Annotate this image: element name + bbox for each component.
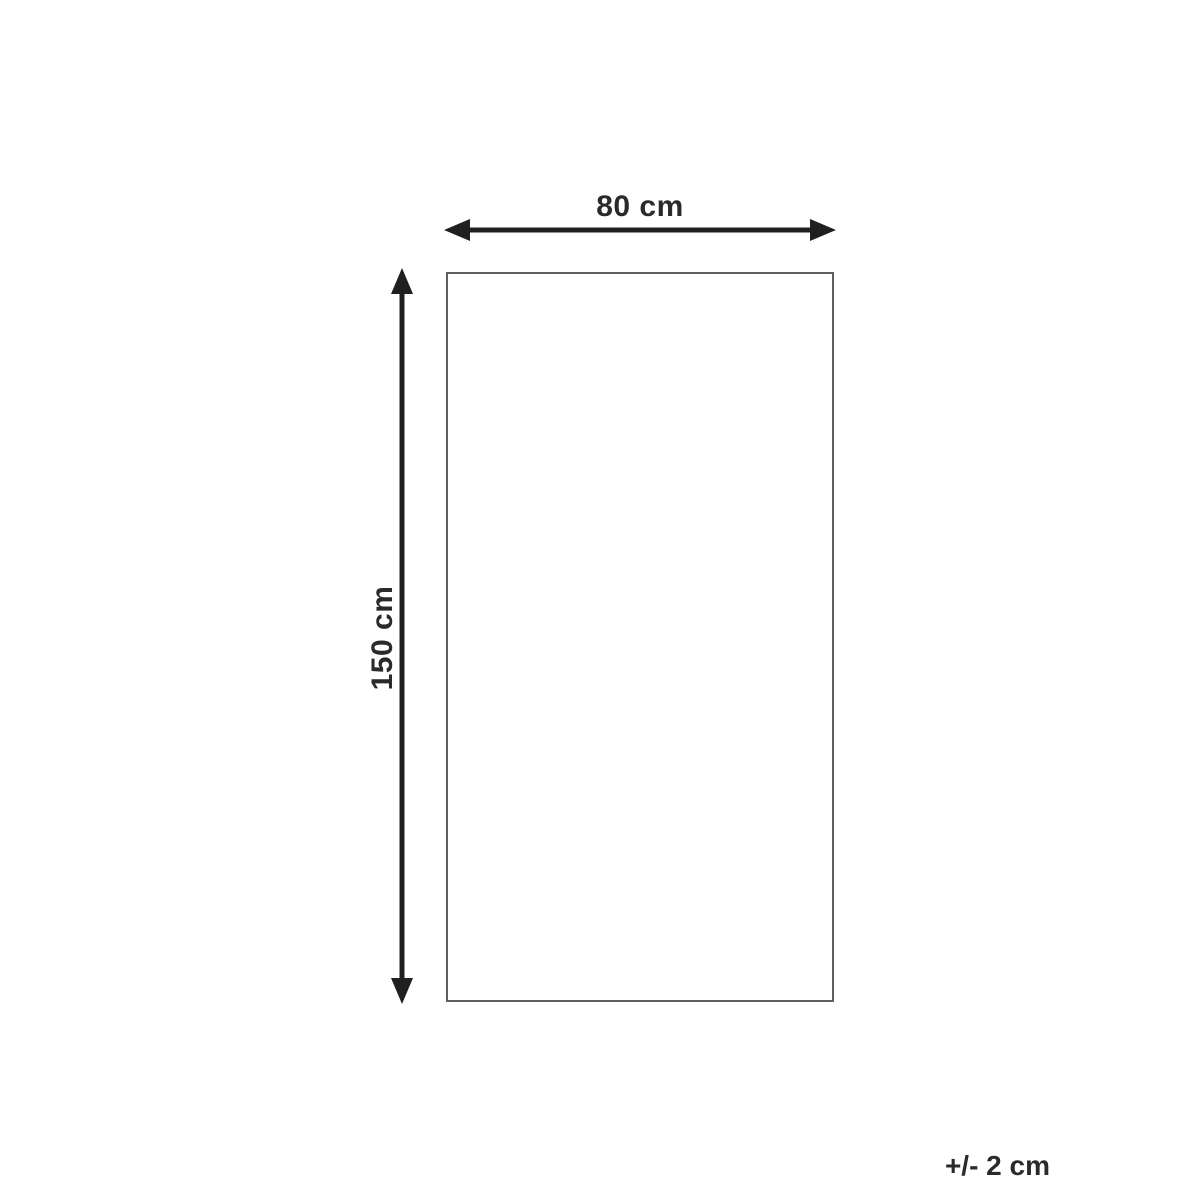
height-label: 150 cm	[353, 568, 413, 708]
product-outline-rect	[446, 272, 834, 1002]
tolerance-label: +/- 2 cm	[945, 1150, 1050, 1182]
dimension-diagram: 80 cm 150 cm +/- 2 cm	[0, 0, 1200, 1200]
width-label: 80 cm	[446, 192, 834, 222]
